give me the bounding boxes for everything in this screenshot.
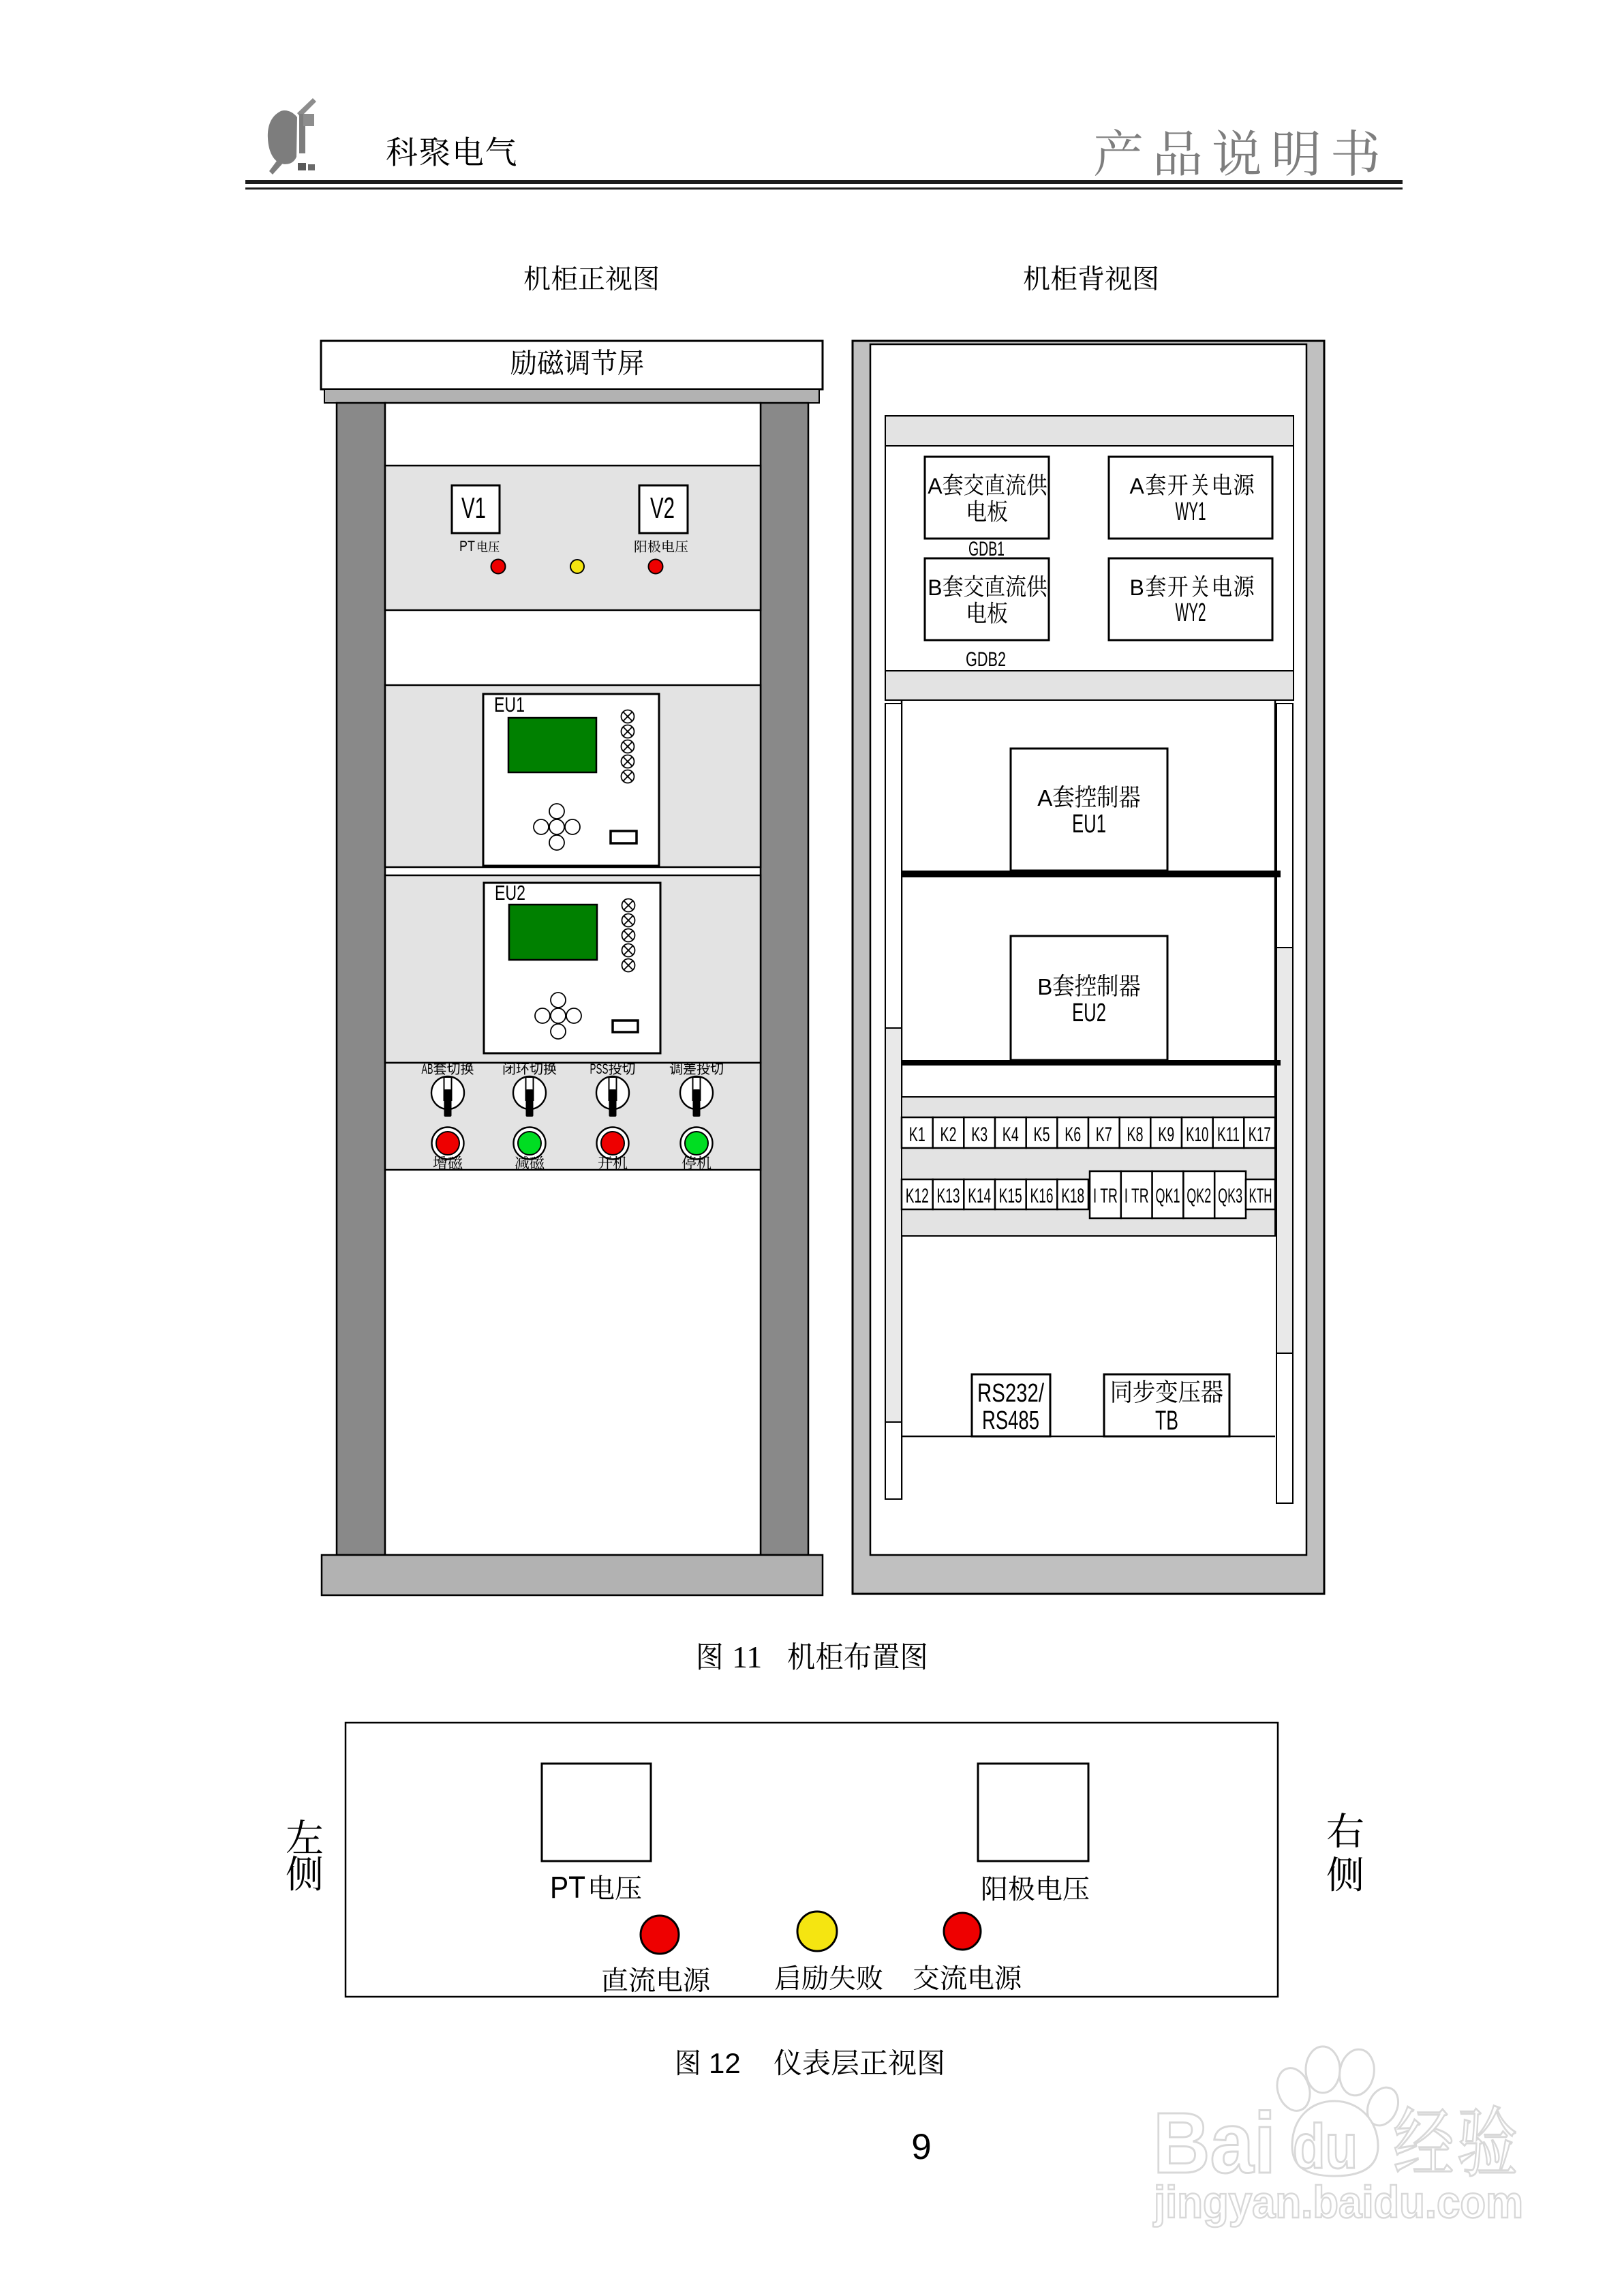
svg-text:K12: K12 (906, 1185, 929, 1207)
svg-text:PT: PT (459, 539, 475, 554)
svg-text:V2: V2 (650, 492, 675, 525)
svg-text:AB: AB (422, 1061, 433, 1077)
svg-text:12: 12 (709, 2047, 741, 2079)
svg-text:V1: V1 (461, 492, 486, 525)
svg-text:GDB2: GDB2 (966, 648, 1006, 671)
svg-text:K9: K9 (1158, 1123, 1174, 1146)
svg-text:I TR: I TR (1093, 1185, 1118, 1207)
svg-text:PSS: PSS (590, 1061, 609, 1077)
svg-text:PT: PT (550, 1870, 585, 1905)
svg-text:RS485: RS485 (982, 1406, 1039, 1435)
svg-text:K4: K4 (1003, 1123, 1019, 1146)
svg-text:K14: K14 (968, 1185, 991, 1207)
svg-text:RS232/: RS232/ (977, 1379, 1044, 1408)
svg-text:QK3: QK3 (1218, 1185, 1242, 1207)
svg-text:WY1: WY1 (1176, 498, 1206, 526)
svg-text:K7: K7 (1096, 1123, 1112, 1146)
svg-text:K13: K13 (937, 1185, 960, 1207)
svg-text:B: B (1130, 575, 1144, 600)
svg-text:QK2: QK2 (1187, 1185, 1211, 1207)
svg-text:du: du (1293, 2112, 1358, 2181)
svg-text:GDB1: GDB1 (968, 538, 1005, 560)
svg-text:QK1: QK1 (1156, 1185, 1180, 1207)
svg-text:B: B (1037, 974, 1052, 999)
svg-text:WY2: WY2 (1176, 599, 1206, 627)
svg-text:K5: K5 (1034, 1123, 1050, 1146)
svg-text:A: A (928, 474, 943, 498)
svg-text:jingyan.baidu.com: jingyan.baidu.com (1152, 2177, 1523, 2227)
svg-text:K6: K6 (1065, 1123, 1081, 1146)
svg-text:K3: K3 (971, 1123, 988, 1146)
svg-text:KTH: KTH (1249, 1185, 1272, 1207)
svg-text:K15: K15 (999, 1185, 1022, 1207)
svg-text:9: 9 (911, 2127, 931, 2167)
svg-text:TB: TB (1155, 1406, 1178, 1436)
svg-text:11: 11 (732, 1640, 762, 1674)
svg-text:A: A (1037, 785, 1052, 811)
svg-text:K10: K10 (1186, 1123, 1208, 1146)
svg-text:K16: K16 (1030, 1185, 1054, 1207)
svg-text:B: B (928, 575, 942, 600)
svg-text:K1: K1 (909, 1123, 925, 1146)
svg-text:K17: K17 (1249, 1123, 1271, 1146)
svg-text:K18: K18 (1061, 1185, 1084, 1207)
svg-text:EU1: EU1 (1072, 810, 1106, 839)
svg-text:A: A (1130, 474, 1145, 498)
svg-text:K11: K11 (1217, 1123, 1240, 1146)
svg-text:K2: K2 (940, 1123, 957, 1146)
svg-text:EU2: EU2 (495, 881, 525, 905)
svg-text:EU1: EU1 (494, 693, 525, 716)
svg-text:EU2: EU2 (1072, 999, 1106, 1027)
svg-text:K8: K8 (1127, 1123, 1144, 1146)
svg-text:I TR: I TR (1124, 1185, 1149, 1207)
